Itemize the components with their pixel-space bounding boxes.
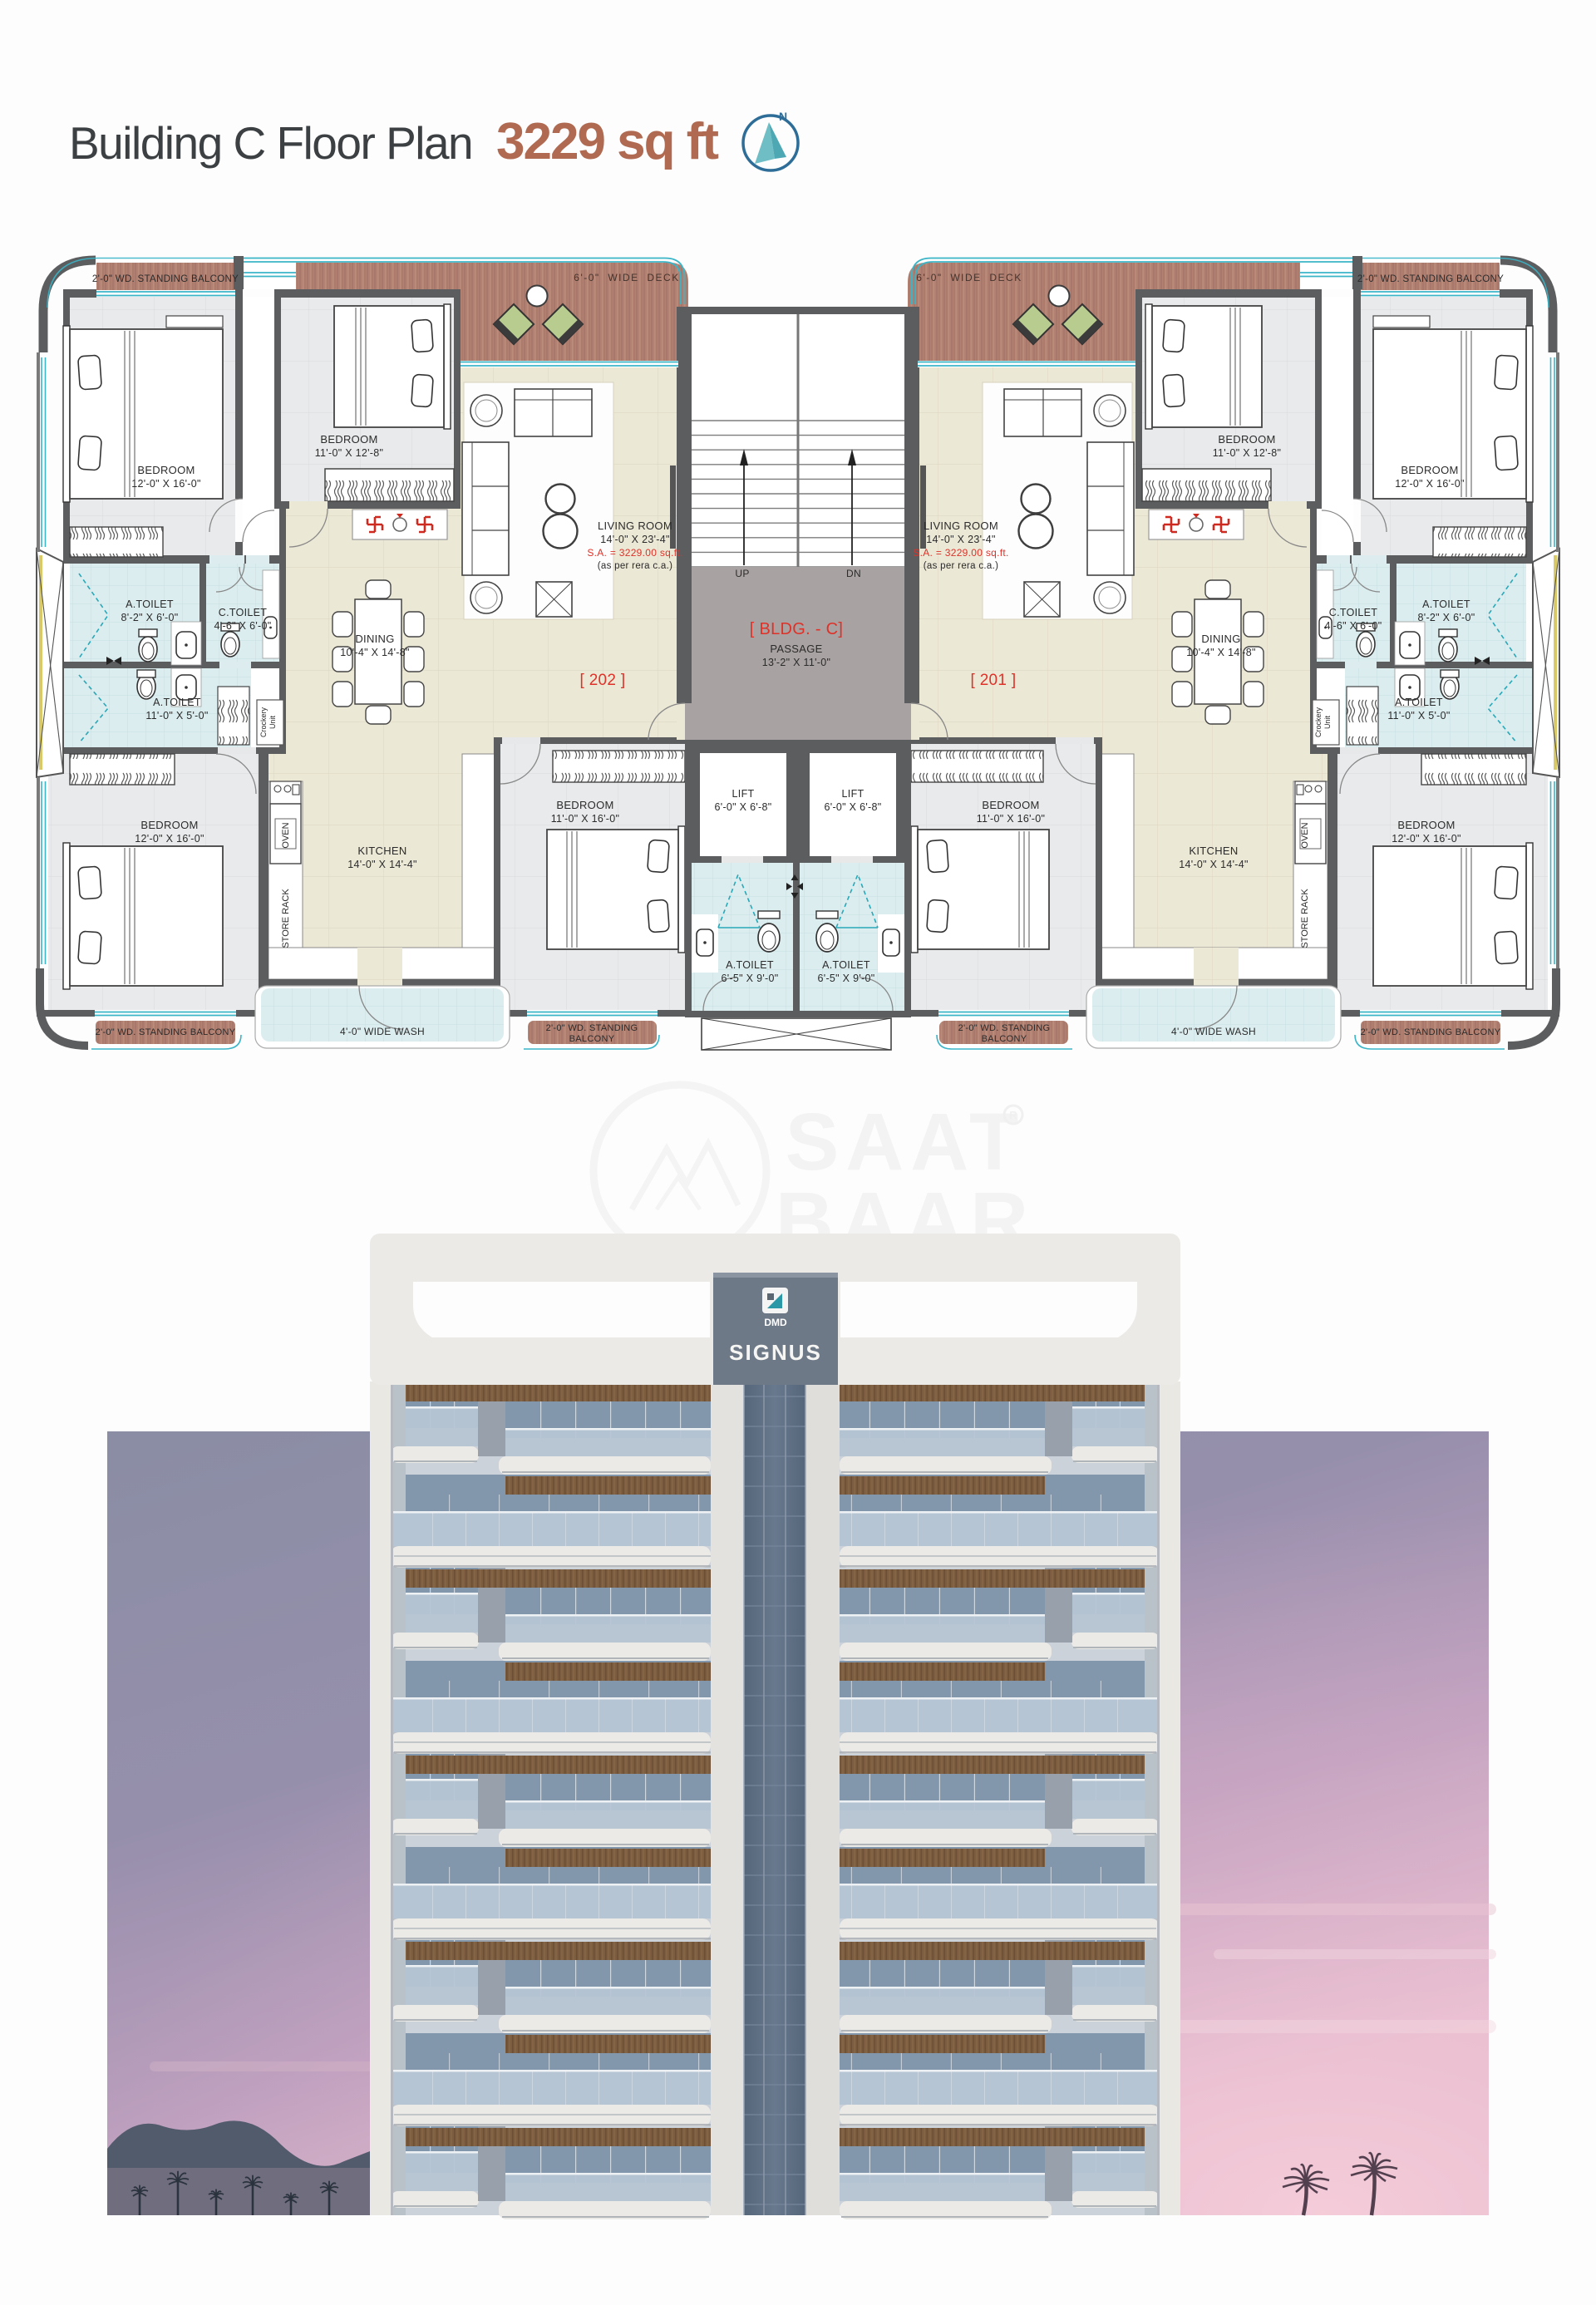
svg-text:10'-4" X 14'-8": 10'-4" X 14'-8" [1186,647,1255,658]
svg-text:6'-0" WIDE DECK: 6'-0" WIDE DECK [574,272,679,283]
svg-text:OVEN: OVEN [281,822,291,848]
svg-text:A.TOILET: A.TOILET [1395,697,1443,708]
svg-text:2'-0" WD. STANDING: 2'-0" WD. STANDING [958,1023,1051,1033]
svg-text:3229 sq ft: 3229 sq ft [496,113,718,170]
svg-text:Crockery: Crockery [259,707,268,738]
svg-text:BALCONY: BALCONY [569,1034,615,1044]
svg-text:[ 202 ]: [ 202 ] [580,672,626,689]
svg-text:12'-0" X 16'-0": 12'-0" X 16'-0" [135,833,204,845]
svg-text:4'-6" X 6'-0": 4'-6" X 6'-0" [1325,620,1382,632]
svg-text:LIFT: LIFT [842,788,864,800]
svg-text:10'-4" X 14'-8": 10'-4" X 14'-8" [340,647,409,658]
svg-text:6'-0" X 6'-8": 6'-0" X 6'-8" [825,801,882,813]
svg-text:2'-0" WD. STANDING: 2'-0" WD. STANDING [546,1023,638,1033]
svg-text:S.A. = 3229.00 sq.ft.: S.A. = 3229.00 sq.ft. [913,547,1008,559]
svg-text:2'-0" WD. STANDING BALCONY: 2'-0" WD. STANDING BALCONY [92,274,239,284]
svg-text:2'-0" WD. STANDING BALCONY: 2'-0" WD. STANDING BALCONY [96,1027,236,1037]
svg-text:11'-0" X 16'-0": 11'-0" X 16'-0" [977,813,1046,825]
svg-text:14'-0" X 23'-4": 14'-0" X 23'-4" [600,534,669,545]
svg-text:[ 201 ]: [ 201 ] [971,672,1017,689]
svg-text:DINING: DINING [355,633,394,645]
svg-text:DN: DN [846,568,861,579]
svg-text:Building C Floor Plan: Building C Floor Plan [69,117,472,169]
svg-text:Unit: Unit [268,716,277,730]
svg-text:11'-0" X 16'-0": 11'-0" X 16'-0" [551,813,620,825]
svg-text:(as per rera c.a.): (as per rera c.a.) [924,561,998,571]
svg-text:A.TOILET: A.TOILET [126,598,174,610]
svg-text:11'-0" X 5'-0": 11'-0" X 5'-0" [1387,710,1450,722]
svg-text:PASSAGE: PASSAGE [770,643,822,655]
svg-text:12'-0" X 16'-0": 12'-0" X 16'-0" [1395,478,1464,490]
svg-text:UP: UP [735,568,749,579]
svg-text:11'-0" X 5'-0": 11'-0" X 5'-0" [145,710,208,722]
svg-text:STORE RACK: STORE RACK [1300,889,1310,948]
svg-text:LIVING ROOM: LIVING ROOM [924,520,998,532]
svg-text:BEDROOM: BEDROOM [556,799,613,811]
svg-text:4'-0" WIDE WASH: 4'-0" WIDE WASH [340,1026,425,1037]
svg-text:LIVING ROOM: LIVING ROOM [598,520,672,532]
svg-text:[ BLDG. - C]: [ BLDG. - C] [750,620,844,638]
svg-text:6'-0" X 6'-8": 6'-0" X 6'-8" [715,801,772,813]
svg-text:SIGNUS: SIGNUS [729,1340,822,1365]
svg-text:BEDROOM: BEDROOM [982,799,1039,811]
svg-text:KITCHEN: KITCHEN [1189,845,1238,857]
svg-text:OVEN: OVEN [1300,822,1310,848]
svg-text:11'-0" X 12'-8": 11'-0" X 12'-8" [1213,447,1282,459]
svg-text:A.TOILET: A.TOILET [1422,598,1470,610]
svg-text:13'-2" X 11'-0": 13'-2" X 11'-0" [762,657,831,668]
svg-text:A.TOILET: A.TOILET [726,959,774,971]
svg-text:S.A. = 3229.00 sq.ft.: S.A. = 3229.00 sq.ft. [587,547,682,559]
svg-text:(as per rera c.a.): (as per rera c.a.) [598,561,672,571]
svg-text:STORE RACK: STORE RACK [281,889,291,948]
svg-text:A.TOILET: A.TOILET [153,697,201,708]
svg-text:6'-5" X 9'-0": 6'-5" X 9'-0" [818,973,875,984]
svg-text:BEDROOM: BEDROOM [1397,819,1455,831]
svg-text:12'-0" X 16'-0": 12'-0" X 16'-0" [1392,833,1461,845]
svg-text:A.TOILET: A.TOILET [822,959,870,971]
svg-text:14'-0" X 14'-4": 14'-0" X 14'-4" [1179,859,1248,870]
svg-text:BEDROOM: BEDROOM [137,464,195,476]
svg-text:DMD: DMD [764,1317,787,1328]
svg-text:C.TOILET: C.TOILET [1329,607,1377,618]
svg-text:N: N [779,110,787,123]
svg-text:2'-0" WD. STANDING BALCONY: 2'-0" WD. STANDING BALCONY [1361,1027,1501,1037]
svg-text:Crockery: Crockery [1314,707,1323,738]
svg-text:12'-0" X 16'-0": 12'-0" X 16'-0" [131,478,200,490]
svg-text:BALCONY: BALCONY [982,1034,1027,1044]
svg-text:SAAT: SAAT [786,1096,1026,1187]
svg-text:8'-2" X 6'-0": 8'-2" X 6'-0" [1418,612,1475,623]
svg-text:R: R [1009,1109,1017,1121]
svg-text:14'-0" X 23'-4": 14'-0" X 23'-4" [926,534,995,545]
svg-text:14'-0" X 14'-4": 14'-0" X 14'-4" [347,859,416,870]
svg-text:4'-0" WIDE WASH: 4'-0" WIDE WASH [1171,1026,1256,1037]
svg-text:6'-0" WIDE DECK: 6'-0" WIDE DECK [916,272,1022,283]
svg-text:KITCHEN: KITCHEN [357,845,406,857]
svg-text:11'-0" X 12'-8": 11'-0" X 12'-8" [315,447,384,459]
svg-text:2'-0" WD. STANDING BALCONY: 2'-0" WD. STANDING BALCONY [1357,274,1504,284]
svg-text:8'-2" X 6'-0": 8'-2" X 6'-0" [121,612,179,623]
svg-text:BEDROOM: BEDROOM [140,819,198,831]
svg-text:LIFT: LIFT [732,788,755,800]
svg-text:BEDROOM: BEDROOM [320,433,377,446]
svg-text:BEDROOM: BEDROOM [1401,464,1458,476]
svg-text:6'-5" X 9'-0": 6'-5" X 9'-0" [722,973,779,984]
svg-text:Unit: Unit [1323,716,1332,730]
svg-text:4'-6" X 6'-0": 4'-6" X 6'-0" [214,620,272,632]
svg-text:C.TOILET: C.TOILET [219,607,267,618]
svg-text:DINING: DINING [1201,633,1240,645]
svg-text:BEDROOM: BEDROOM [1218,433,1275,446]
